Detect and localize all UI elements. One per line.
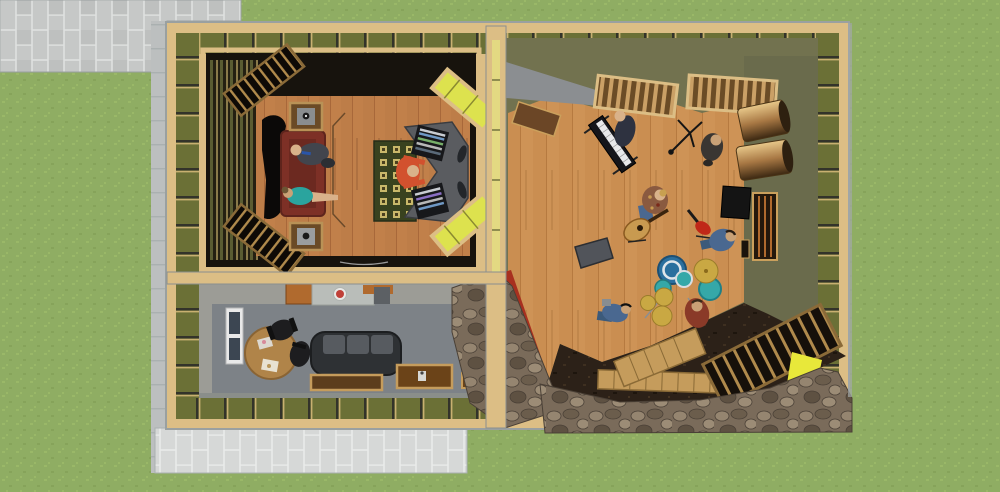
- paver-patio-bottom: [155, 428, 467, 473]
- cymbal-hihat: [641, 296, 656, 311]
- wall-bays-bottom: [176, 398, 506, 419]
- kitchenette: [286, 284, 393, 305]
- wall-outlet-panel: [741, 240, 749, 258]
- head: [711, 135, 722, 146]
- lounge-wall-bottom: [199, 393, 489, 398]
- head: [291, 145, 302, 156]
- sheathing-edge-right: [848, 23, 852, 397]
- snare-drum: [676, 271, 692, 287]
- divider-wall-vertical: [486, 26, 506, 428]
- lounge: [199, 284, 492, 398]
- hat: [659, 189, 666, 196]
- speaker-cabinet-bottom: [290, 223, 322, 250]
- lounge-sofa: [311, 332, 401, 375]
- studio-floorplan-render: [0, 0, 1000, 492]
- appliance: [374, 287, 390, 304]
- divider-wall-horizontal: [167, 272, 506, 284]
- coffee-table-1: [311, 375, 382, 390]
- guitar-amp: [721, 186, 751, 219]
- kitchen-cabinet: [286, 284, 312, 304]
- live-room-door-right: [753, 193, 777, 260]
- cymbal-crash-2: [652, 306, 672, 326]
- coffee-table-2: [397, 365, 452, 388]
- lounge-wall-left: [199, 284, 212, 398]
- control-room: [203, 44, 498, 275]
- floorplan-canvas: [0, 0, 1000, 492]
- wall-bays-left: [176, 33, 199, 419]
- speaker-cabinet-top: [290, 103, 322, 130]
- head: [407, 165, 419, 177]
- head: [615, 111, 626, 122]
- feet: [703, 160, 713, 167]
- pedal: [602, 299, 611, 306]
- hair: [282, 187, 289, 194]
- lounge-window: [226, 308, 243, 364]
- cymbal-crash: [655, 288, 673, 306]
- concrete-walkway-left: [151, 21, 167, 473]
